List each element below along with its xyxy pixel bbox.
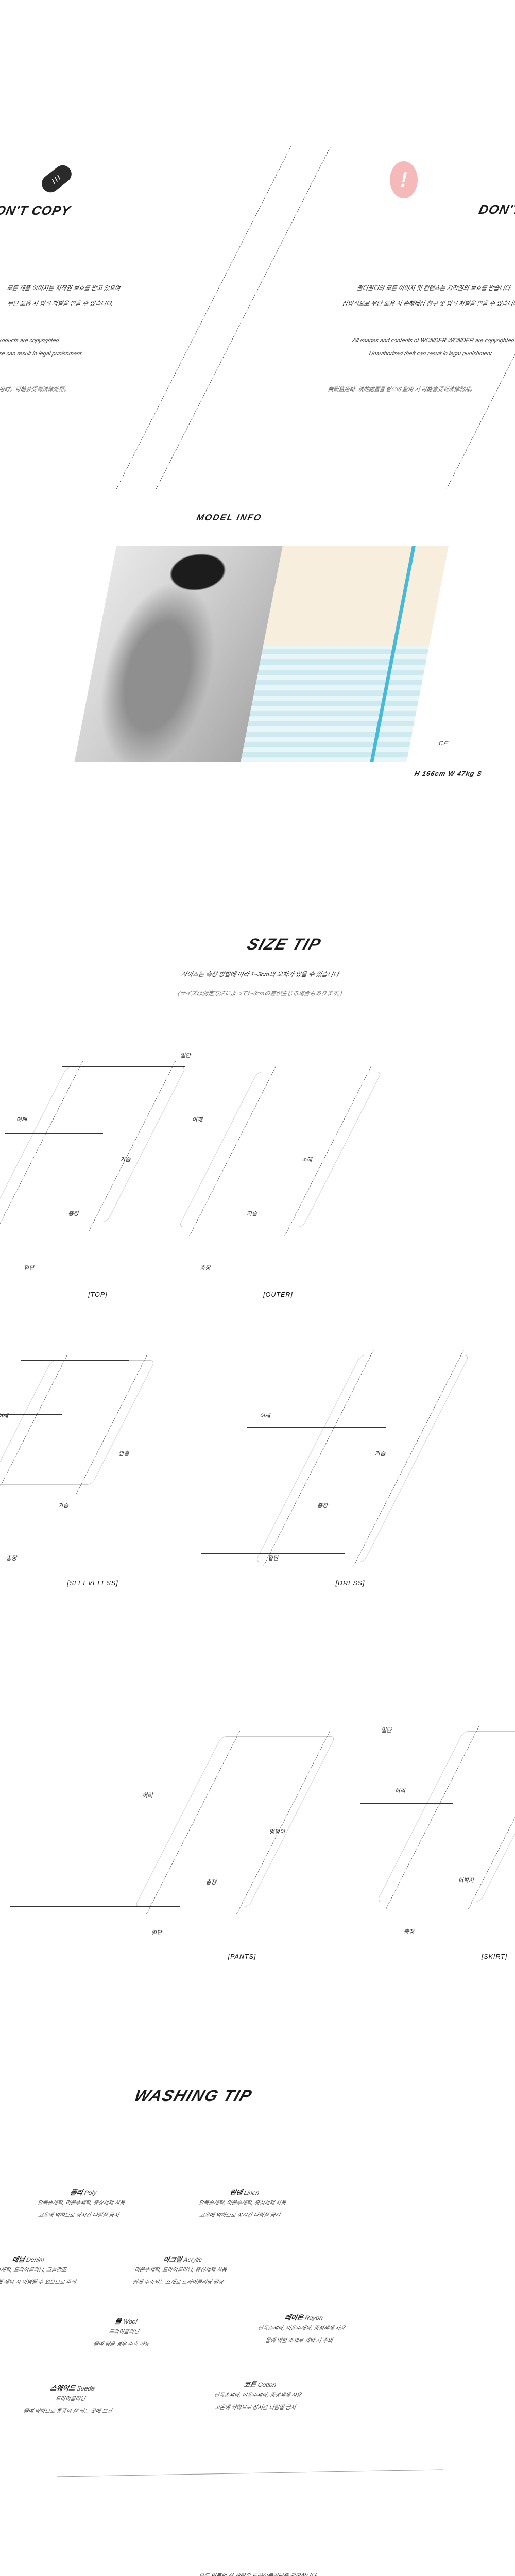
washing-cautions: - 모든 의류의 첫 세탁은 드라이클리닝을 권장합니다.- 면 소재(데님 포…	[0, 2566, 515, 2576]
notice-right-english: All images and contents of WONDER WONDER…	[265, 334, 515, 361]
size-tip-subtitle-jp: (サイズは測定方法によって1~3cmの差が生じる場合もあります。)	[2, 989, 515, 997]
size-tip-title: SIZE TIP	[49, 935, 515, 954]
no-copy-icon: ///	[40, 170, 73, 188]
wash-item-acrylic: 아크릴 Acrylic 미온수세탁, 드라이클리닝, 중성세제 사용쉽게 수축되…	[89, 2254, 271, 2289]
diagram-caption: [SKIRT]	[381, 1953, 515, 1960]
product-detail-page: /// DON'T COPY 모든 제품 이미지는 저작권 보호를 받고 있으며…	[0, 0, 515, 2576]
size-diagram-pants: 허리엉덩이총장밑단 [PANTS]	[129, 1731, 355, 1960]
wash-item-cotton: 코튼 Cotton 단독손세탁, 미온수세탁, 중성세제 사용고온에 약하므로 …	[166, 2379, 349, 2414]
size-diagram-dress: 어깨가슴총장밑단 [DRESS]	[247, 1350, 453, 1587]
wash-item-poly: 폴리 Poly 단독손세탁, 미온수세탁, 중성세제 사용고온에 약하므로 장시…	[0, 2187, 172, 2222]
warning-icon: !	[390, 161, 418, 198]
diagram-caption: [OUTER]	[180, 1291, 376, 1298]
model-name: CE	[438, 740, 450, 747]
diagram-caption: [DRESS]	[247, 1580, 453, 1587]
notice-right-korean: 원더원더의 모든 이미지 및 컨텐츠는 저작권의 보호를 받습니다.상업적으로 …	[270, 281, 515, 312]
washing-tip-title: WASHING TIP	[132, 2087, 255, 2105]
notice-right-chinese: 無斷盜用時, 法的處置를 받으며 盜用 시 可能會受到法律制裁。	[220, 385, 515, 393]
size-diagram-skirt: 허리엉덩이허벅지총장밑단 [SKIRT]	[381, 1726, 515, 1960]
notice-left-korean: 모든 제품 이미지는 저작권 보호를 받고 있으며무단 도용 시 법적 처벌을 …	[0, 281, 188, 312]
diagram-caption: [PANTS]	[129, 1953, 355, 1960]
wash-item-wool: 울 Wool 드라이클리닝물에 닿을 경우 수축 가능	[32, 2316, 215, 2350]
wash-item-suede: 스웨이드 Suede 드라이클리닝물에 약하므로 통풍이 잘 되는 곳에 보관	[0, 2383, 161, 2417]
notice-left-chinese: 未经授权使用时，可能会受到法律处罚。	[0, 385, 119, 393]
dont-steal-title: DON'T STEAL	[477, 202, 515, 217]
model-photo	[74, 546, 449, 762]
divider	[57, 2469, 443, 2477]
model-stats: H 166cm W 47kg S	[414, 770, 515, 777]
wash-item-rayon: 레이온 Rayon 단독손세탁, 미온수세탁, 중성세제 사용물에 약한 소재로…	[210, 2312, 392, 2347]
notice-left-english: All products are copyrighted.Unauthorize…	[0, 334, 147, 361]
diagram-caption: [TOP]	[5, 1291, 191, 1298]
size-diagram-outer: 어깨소매가슴총장밑단 [OUTER]	[180, 1051, 376, 1298]
model-info-title: MODEL INFO	[0, 513, 459, 523]
size-tip-subtitle-ko: 사이즈는 측정 방법에 따라 1~3cm의 오차가 있을 수 있습니다	[2, 970, 515, 978]
diagram-caption: [SLEEVELESS]	[0, 1580, 201, 1587]
size-diagram-top: 어깨가슴총장밑단 [TOP]	[5, 1051, 191, 1298]
dont-copy-title: DON'T COPY	[0, 204, 72, 218]
size-diagram-sleeveless: 어깨암홀가슴총장밑단 [SLEEVELESS]	[0, 1350, 201, 1587]
wash-item-linen: 린넨 Linen 단독손세탁, 미온수세탁, 중성세제 사용고온에 약하므로 장…	[151, 2187, 333, 2222]
